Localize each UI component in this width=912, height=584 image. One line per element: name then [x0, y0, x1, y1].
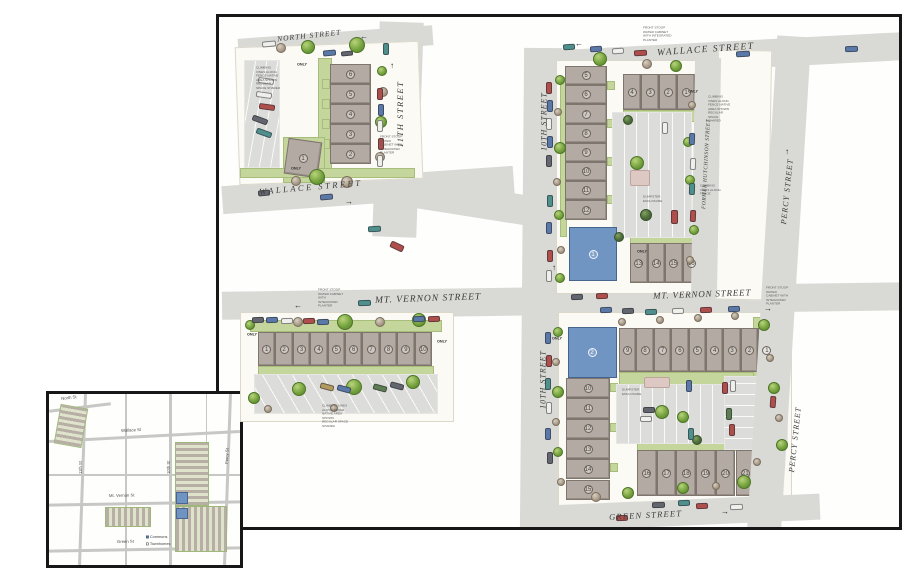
car-icon — [662, 122, 668, 134]
unit-number: 3 — [728, 346, 737, 355]
unit-number: 1 — [299, 154, 308, 163]
unit-number: 14 — [652, 259, 661, 268]
unit-number: 12 — [584, 424, 593, 433]
arrow-icon: → — [764, 305, 772, 313]
tree-icon — [642, 59, 652, 69]
inset-street-line — [49, 474, 240, 476]
tree-icon — [301, 40, 315, 54]
parking-lot — [612, 112, 692, 238]
car-icon — [428, 316, 440, 322]
tree-icon — [554, 210, 564, 220]
tree-icon — [264, 405, 272, 413]
annotation-note: FRONT STOOP WATER CABINET WITH INTEGRATE… — [643, 26, 672, 42]
car-icon — [262, 40, 276, 47]
green-strip — [240, 168, 415, 178]
only-label: ONLY — [297, 63, 307, 67]
tree-icon — [248, 392, 260, 404]
arrow-icon: ← — [294, 302, 302, 310]
inset-development-block — [105, 507, 151, 527]
unit-number: 6 — [582, 90, 591, 99]
car-icon — [700, 307, 712, 313]
tree-icon — [677, 482, 689, 494]
car-icon — [726, 408, 732, 420]
car-icon — [645, 309, 657, 315]
unit-number: 4 — [628, 88, 637, 97]
unit-number: 6 — [349, 345, 358, 354]
car-icon — [728, 306, 740, 312]
tree-icon — [293, 317, 303, 327]
car-icon — [690, 158, 696, 170]
courtyard-patch — [630, 170, 650, 186]
tree-icon — [656, 316, 664, 324]
unit-number: 16 — [642, 469, 651, 478]
car-icon — [600, 307, 612, 313]
tree-icon — [689, 225, 699, 235]
green-strip — [610, 463, 618, 472]
unit-number: 3 — [646, 88, 655, 97]
car-icon — [368, 226, 381, 233]
unit-number: 10 — [582, 167, 591, 176]
only-label: ONLY — [291, 167, 301, 171]
courtyard-patch — [644, 377, 670, 388]
unit-number: 7 — [367, 345, 376, 354]
arrow-icon: ← — [360, 33, 368, 41]
car-icon — [696, 503, 708, 509]
tree-icon — [670, 60, 682, 72]
tree-icon — [553, 178, 561, 186]
tree-icon — [614, 232, 624, 242]
car-icon — [596, 293, 608, 299]
car-icon — [722, 382, 728, 394]
annotation-note: FRONT STOOP WATER CABINET WITH INTEGRATE… — [318, 288, 345, 308]
tree-icon — [768, 382, 780, 394]
car-icon — [770, 396, 777, 408]
tree-icon — [593, 52, 607, 66]
townhomes-legend-label: Townhomes — [150, 542, 171, 546]
unit-number: 5 — [582, 71, 591, 80]
green-strip — [322, 79, 330, 89]
inset-label-mt-vernon-st: Mt. Vernon St — [109, 494, 135, 499]
tree-icon — [552, 358, 560, 366]
car-icon — [320, 193, 333, 200]
street-label-10th-lower: 10TH STREET — [539, 340, 548, 420]
tree-icon — [677, 411, 689, 423]
street-label-11th: 11TH STREET — [395, 69, 405, 159]
tree-icon — [555, 273, 565, 283]
car-icon — [303, 318, 315, 324]
townhomes-legend-marker — [146, 543, 149, 546]
car-icon — [688, 428, 694, 440]
unit-number: 8 — [582, 129, 591, 138]
car-icon — [730, 504, 743, 510]
unit-number: 6 — [675, 346, 684, 355]
tree-icon — [712, 482, 720, 490]
unit-number: 7 — [658, 346, 667, 355]
tree-icon — [552, 418, 560, 426]
car-icon — [690, 210, 696, 222]
car-icon — [622, 308, 634, 314]
tree-icon — [276, 43, 286, 53]
car-icon — [545, 428, 551, 440]
arrow-icon: ← — [575, 40, 583, 48]
car-icon — [672, 308, 684, 314]
car-icon — [547, 250, 553, 262]
tree-icon — [686, 256, 694, 264]
inset-label-percy-st: Percy St — [225, 448, 230, 464]
tree-icon — [688, 101, 696, 109]
commons-legend-label: Commons — [150, 535, 168, 539]
annotation-note: DUMPSTER ENCLOSURE — [643, 195, 659, 203]
car-icon — [341, 50, 353, 56]
tree-icon — [731, 312, 739, 320]
tree-icon — [553, 447, 563, 457]
unit-number: 4 — [346, 110, 355, 119]
tree-icon — [640, 209, 652, 221]
inset-label-10th-st: 10th St — [167, 461, 171, 474]
car-icon — [547, 195, 553, 207]
commons-number: 2 — [588, 348, 597, 357]
car-icon — [358, 300, 371, 306]
tree-icon — [337, 314, 353, 330]
unit-number: 15 — [669, 259, 678, 268]
tree-icon — [406, 375, 420, 389]
tree-icon — [591, 492, 601, 502]
unit-number: 10 — [584, 384, 593, 393]
site-plan-panel: NORTH STREET WALLACE STREET 11TH STREET … — [216, 14, 902, 530]
tree-icon — [737, 475, 751, 489]
tree-icon — [292, 382, 306, 396]
car-icon — [317, 319, 329, 325]
inset-label-wallace-st: Wallace St — [121, 428, 141, 433]
car-icon — [671, 210, 678, 224]
car-icon — [571, 294, 583, 300]
only-label: ONLY — [552, 337, 562, 341]
tree-icon — [623, 115, 633, 125]
unit-number: 11 — [582, 186, 591, 195]
unit-number: 4 — [314, 345, 323, 354]
unit-number: 17 — [662, 469, 671, 478]
unit-number: 2 — [280, 345, 289, 354]
unit-number: 6 — [346, 70, 355, 79]
arrow-icon: ↑ — [390, 62, 394, 70]
arrow-icon: → — [721, 508, 729, 516]
car-icon — [590, 46, 602, 53]
car-icon — [563, 44, 575, 51]
unit-number: 2 — [346, 150, 355, 159]
arrow-icon: ↑ — [552, 264, 556, 272]
inset-commons-square — [176, 508, 188, 519]
green-strip — [322, 99, 330, 109]
unit-number: 2 — [664, 88, 673, 97]
unit-number: 9 — [401, 345, 410, 354]
unit-number: 13 — [634, 259, 643, 268]
car-icon — [252, 317, 264, 323]
only-label: ONLY — [247, 333, 257, 337]
unit-number: 4 — [710, 346, 719, 355]
unit-number: 11 — [584, 404, 593, 413]
unit-number: 9 — [623, 346, 632, 355]
car-icon — [640, 416, 652, 422]
tree-icon — [375, 317, 385, 327]
tree-icon — [557, 478, 565, 486]
unit-number: 5 — [346, 90, 355, 99]
tree-icon — [775, 414, 783, 422]
only-label: ONLY — [437, 340, 447, 344]
car-icon — [689, 183, 695, 195]
tree-icon — [553, 327, 563, 337]
car-icon — [377, 155, 383, 167]
car-icon — [652, 502, 665, 508]
commons-number: 1 — [589, 250, 598, 259]
unit-number: 12 — [582, 206, 591, 215]
unit-number: 13 — [584, 445, 593, 454]
unit-number: 8 — [384, 345, 393, 354]
car-icon — [389, 240, 405, 252]
tree-icon — [618, 318, 626, 326]
car-icon — [634, 50, 647, 57]
car-icon — [730, 380, 736, 392]
car-icon — [845, 46, 858, 52]
car-icon — [612, 48, 624, 55]
tree-icon — [694, 314, 702, 322]
commons-legend-marker — [146, 536, 149, 539]
unit-number: 14 — [584, 465, 593, 474]
tree-icon — [622, 487, 634, 499]
only-label: ONLY — [637, 250, 647, 254]
unit-number: 5 — [332, 345, 341, 354]
unit-number: 5 — [693, 346, 702, 355]
car-icon — [383, 43, 389, 55]
car-icon — [413, 316, 425, 322]
unit-number: 2 — [745, 346, 754, 355]
key-map-panel: North St Wallace St 11th St 10th St Perc… — [46, 391, 243, 568]
car-icon — [281, 318, 293, 324]
car-icon — [266, 317, 278, 323]
unit-number: 3 — [346, 130, 355, 139]
inset-label-11th-st: 11th St — [79, 461, 83, 474]
tree-icon — [758, 319, 770, 331]
unit-number: 10 — [419, 345, 428, 354]
inset-street-line — [169, 394, 172, 565]
unit-number: 18 — [682, 469, 691, 478]
car-icon — [323, 49, 336, 56]
car-icon — [678, 500, 690, 506]
unit-number: 19 — [701, 469, 710, 478]
arrow-icon: → — [345, 198, 353, 206]
tree-icon — [630, 156, 644, 170]
car-icon — [643, 407, 655, 413]
unit-number: 20 — [721, 469, 730, 478]
legend-item-commons: Commons — [146, 535, 167, 539]
green-strip — [607, 81, 615, 90]
car-icon — [378, 104, 384, 116]
tree-icon — [554, 108, 562, 116]
car-icon — [546, 222, 552, 234]
car-icon — [729, 424, 735, 436]
inset-commons-square — [176, 492, 188, 504]
inset-label-north-st: North St — [61, 395, 77, 401]
street-label-10th-upper: 10TH STREET — [540, 79, 549, 165]
car-icon — [377, 120, 383, 132]
inset-label-green-st: Green St — [117, 540, 134, 544]
tree-icon — [753, 458, 761, 466]
tree-icon — [557, 246, 565, 254]
annotation-note: CLIMBING VINES ALONG FENCE NATIVE AREA S… — [256, 66, 281, 90]
unit-number: 8 — [641, 346, 650, 355]
tree-icon — [377, 66, 387, 76]
tree-icon — [766, 354, 774, 362]
annotation-note: DUMPSTER ENCLOSURE — [622, 388, 638, 396]
car-icon — [377, 88, 383, 100]
site-plan-drawing: NORTH STREET WALLACE STREET 11TH STREET … — [0, 0, 912, 584]
legend-item-townhomes: Townhomes — [146, 542, 170, 546]
green-strip — [322, 119, 330, 129]
annotation-note: CLIMBING VINES ALONG FENCE NATIVE AREA S… — [322, 404, 349, 428]
unit-number: 1 — [262, 345, 271, 354]
tree-icon — [655, 405, 669, 419]
unit-number: 9 — [582, 148, 591, 157]
unit-number: 15 — [584, 485, 593, 494]
car-icon — [689, 133, 695, 145]
only-label: ONLY — [688, 90, 698, 94]
tree-icon — [554, 142, 566, 154]
tree-icon — [555, 75, 565, 85]
car-icon — [686, 380, 692, 392]
unit-number: 7 — [582, 110, 591, 119]
tree-icon — [776, 439, 788, 451]
car-icon — [547, 452, 553, 464]
unit-number: 3 — [297, 345, 306, 354]
tree-icon — [552, 386, 564, 398]
